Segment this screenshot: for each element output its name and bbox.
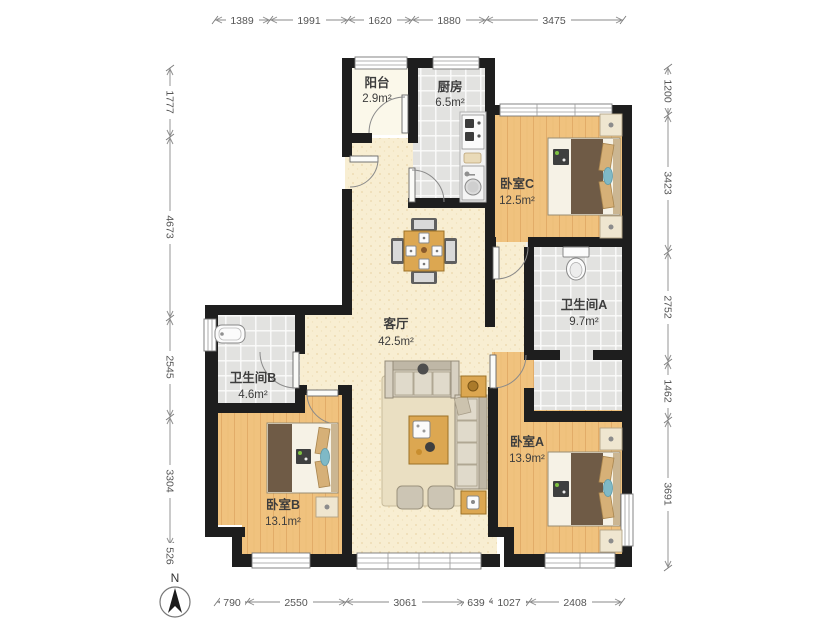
dim-right-5: 3691 (662, 482, 674, 506)
dim-top-1: 1389 (230, 15, 254, 27)
bedroom-c-label: 卧室C (500, 176, 534, 191)
bedroom-a-label: 卧室A (510, 434, 544, 449)
dim-bottom-3: 3061 (393, 597, 417, 609)
dim-right-4: 1462 (662, 379, 674, 403)
dim-right-2: 3423 (662, 171, 674, 195)
north-compass: N (160, 571, 190, 617)
bed-tray-icon (553, 481, 569, 497)
bedroom-a-area: 13.9m² (509, 453, 545, 465)
bedroom-a-side-window (621, 494, 633, 546)
dim-bottom-5: 1027 (497, 597, 521, 609)
sink-icon (462, 166, 484, 200)
north-label: N (171, 571, 180, 585)
north-arrow-icon (168, 588, 182, 613)
kitchen-window (433, 57, 479, 69)
sofa-set (382, 361, 487, 514)
dim-bottom-1: 790 (223, 597, 241, 609)
dim-bottom-6: 2408 (563, 597, 587, 609)
dim-bottom-2: 2550 (284, 597, 308, 609)
kitchen-label: 厨房 (437, 79, 462, 94)
balcony-label: 阳台 (364, 75, 389, 90)
coffee-table-icon (409, 416, 448, 464)
ottoman-icon (428, 486, 454, 509)
bathroom-b-area: 4.6m² (238, 389, 268, 401)
sofa-icon (385, 361, 459, 398)
bathroom-b-label: 卫生间B (230, 370, 277, 385)
bedroom-c-area: 12.5m² (499, 195, 535, 207)
dim-left-3: 2545 (164, 355, 176, 379)
dim-top-3: 1620 (368, 15, 392, 27)
bedroom-b-label: 卧室B (266, 497, 300, 512)
bedroom-b-area: 13.1m² (265, 516, 301, 528)
kitchen-counter (460, 112, 486, 202)
side-table-icon (461, 491, 486, 514)
dim-top-2: 1991 (297, 15, 321, 27)
bathroom-b-window (204, 319, 216, 351)
dim-right-1: 1200 (662, 79, 674, 103)
ottoman-icon (397, 486, 423, 509)
dim-left-2: 4673 (164, 215, 176, 239)
bedroom-a-bottom-window (545, 553, 615, 568)
kitchen-area: 6.5m² (435, 97, 465, 109)
dim-left-1: 1777 (164, 90, 176, 114)
bedroom-c-window (500, 104, 612, 116)
living-area: 42.5m² (378, 336, 414, 348)
dim-left-5: 526 (164, 547, 176, 565)
bathroom-a-label: 卫生间A (561, 297, 608, 312)
floorplan-page: 阳台 2.9m² 厨房 6.5m² 卧室C 12.5m² 卫生间A 9.7m² … (0, 0, 840, 630)
living-room-bottom-window (357, 553, 481, 569)
side-table-icon (461, 376, 486, 397)
balcony-window (355, 57, 407, 69)
dim-top-4: 1880 (437, 15, 461, 27)
bathroom-a-lower-floor (527, 356, 627, 413)
floorplan-canvas: 阳台 2.9m² 厨房 6.5m² 卧室C 12.5m² 卫生间A 9.7m² … (0, 0, 840, 630)
dim-top-5: 3475 (542, 15, 566, 27)
dim-left-4: 3304 (164, 469, 176, 493)
dim-bottom-4: 639 (467, 597, 485, 609)
bed-tray-icon (553, 149, 569, 165)
balcony-area: 2.9m² (362, 93, 392, 105)
bedroom-b-bottom-window (252, 553, 310, 568)
cutting-board-icon (464, 153, 481, 163)
chaise-sofa-icon (454, 395, 487, 489)
bathroom-a-area: 9.7m² (569, 316, 599, 328)
bed-tray-icon (296, 449, 311, 464)
dim-right-3: 2752 (662, 295, 674, 319)
washbasin-icon (215, 325, 245, 343)
living-label: 客厅 (382, 316, 409, 331)
stove-icon (462, 115, 484, 149)
